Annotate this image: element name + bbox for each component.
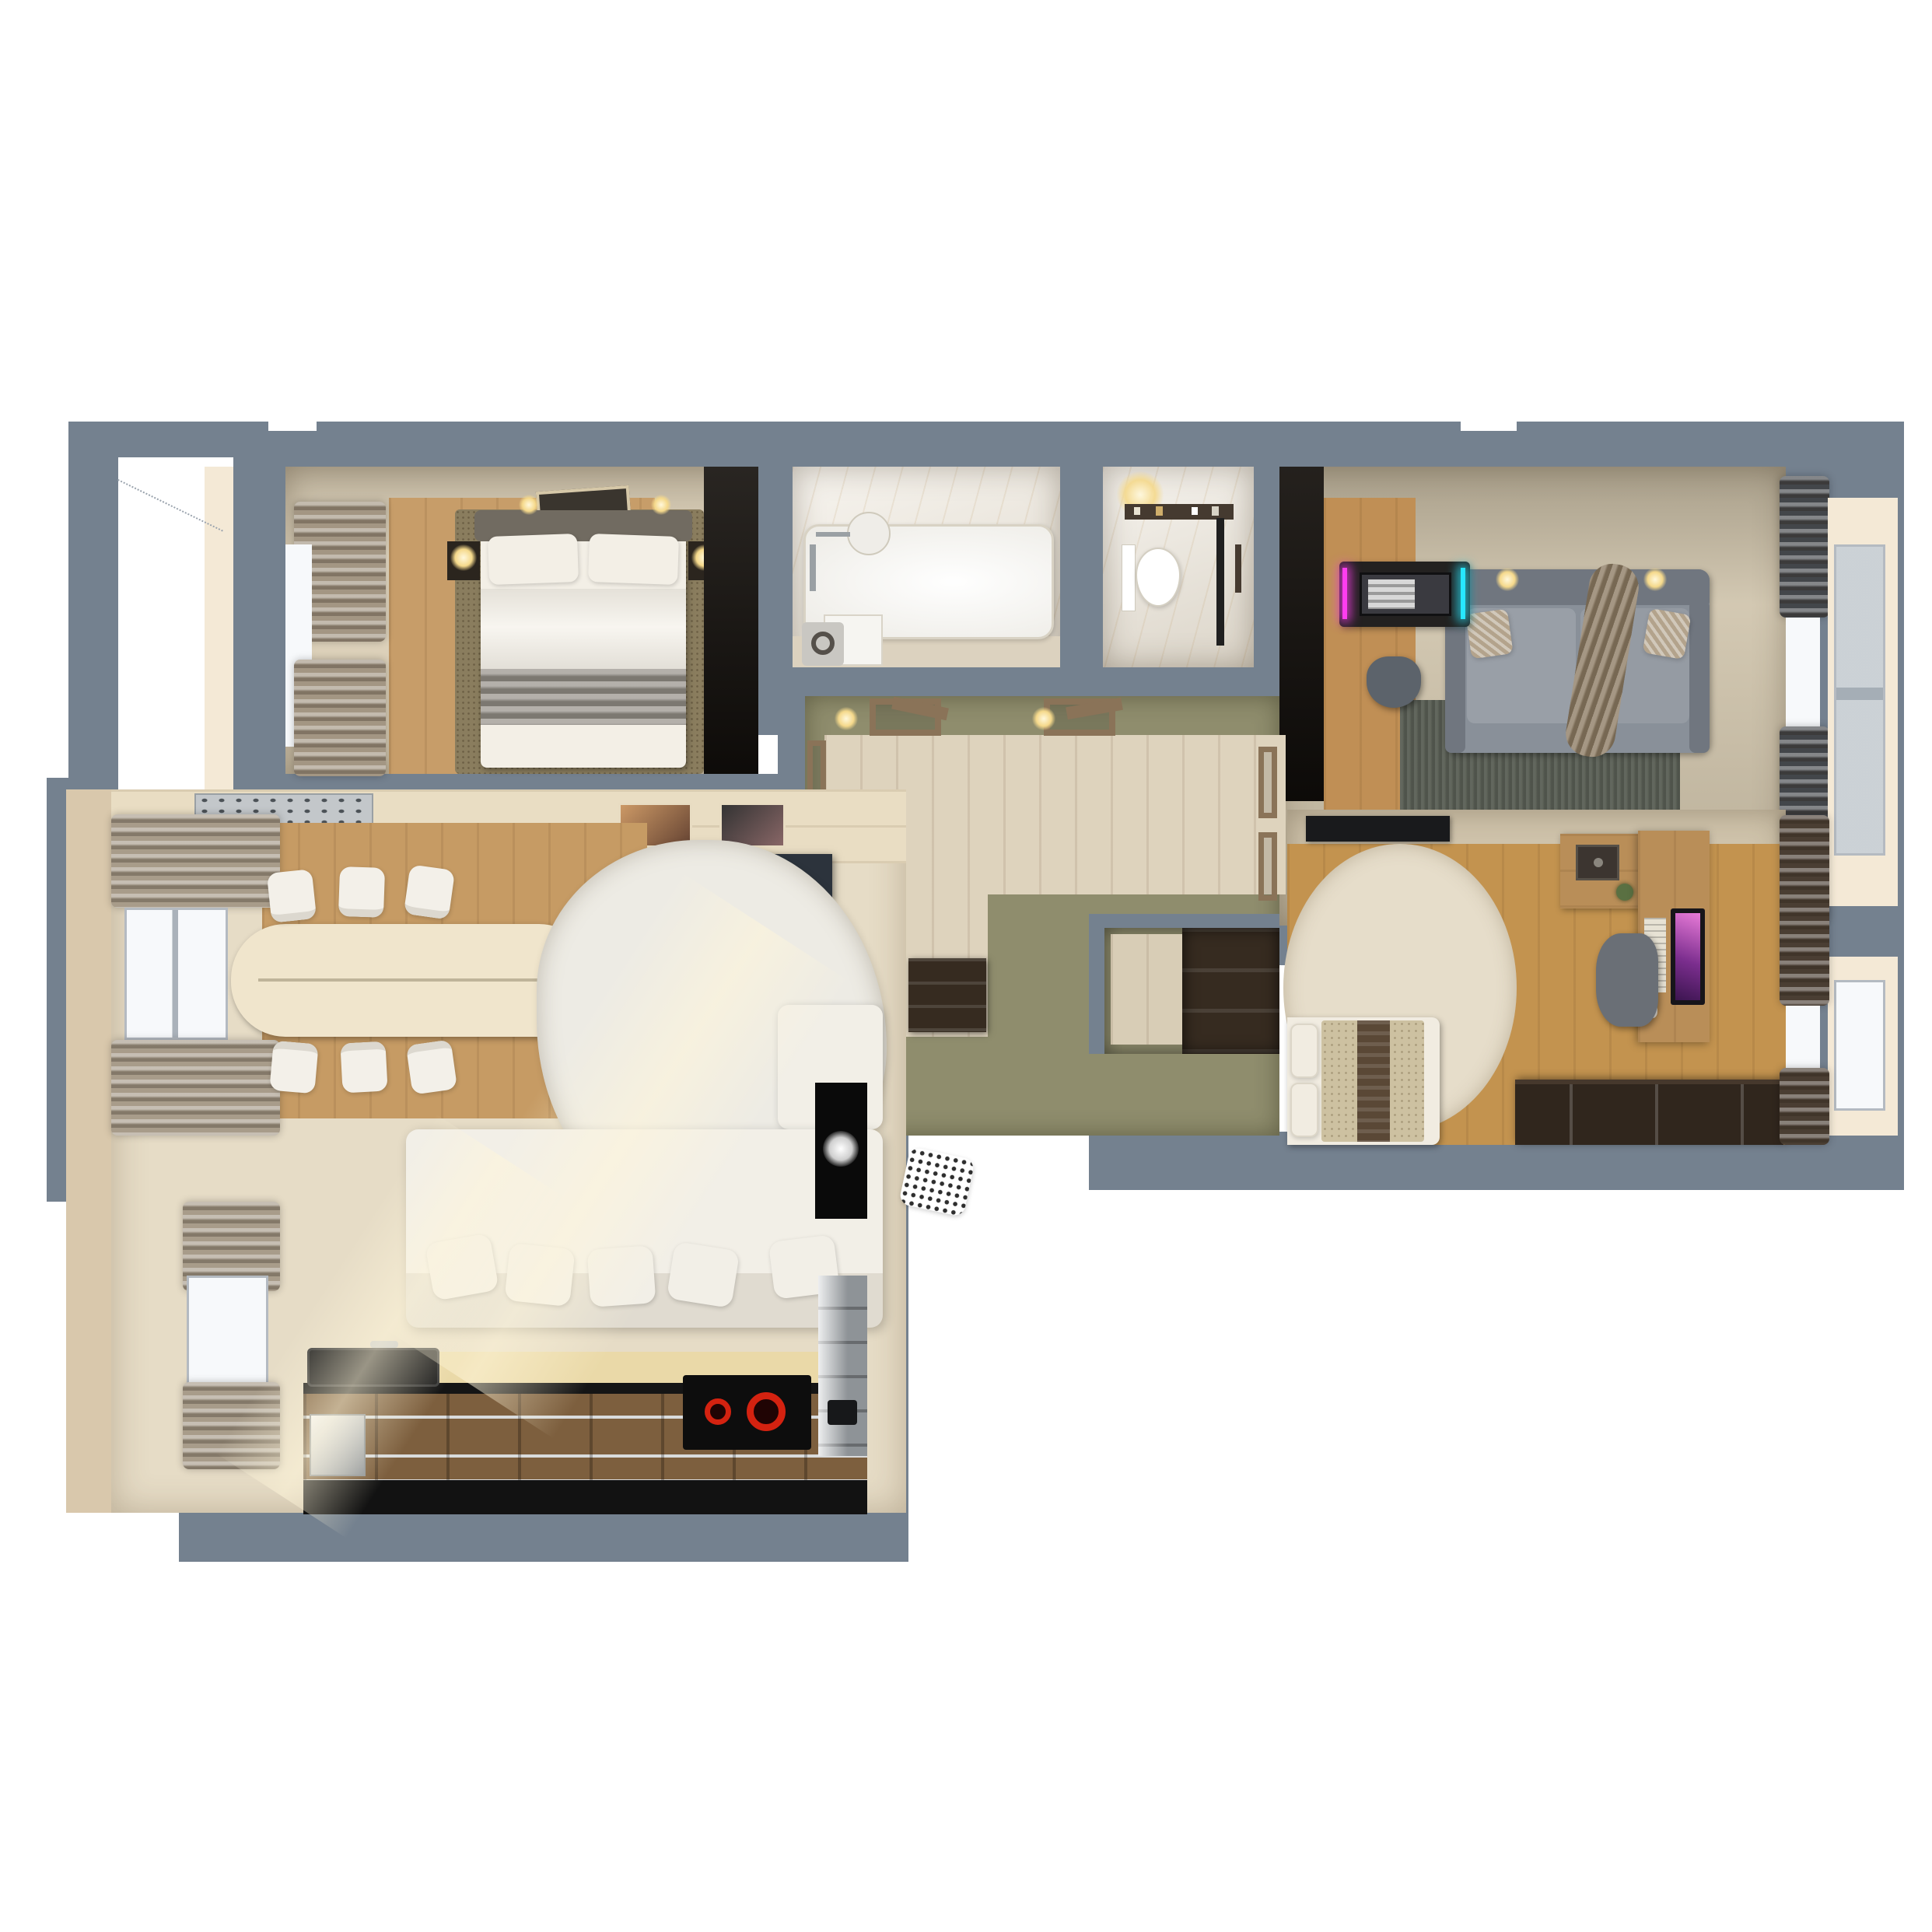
- bathroom-shower-arm: [816, 532, 850, 537]
- burner-large: [747, 1392, 786, 1431]
- sofa-lounge-arm-right: [1689, 600, 1710, 753]
- bed2-pillow-top: [1290, 1024, 1318, 1078]
- kitchen-chrome-box: [310, 1414, 366, 1476]
- toilet-tank: [1122, 544, 1136, 611]
- sofa-lounge-pillow-left: [1465, 609, 1514, 660]
- lounge-window-glow: [1786, 618, 1820, 726]
- wall-bedroom1-west: [233, 457, 285, 792]
- bedroom2-shelf: [1560, 834, 1638, 908]
- bedroom1-ceiling-light-2: [651, 495, 671, 515]
- gaming-rgb-right: [1461, 568, 1465, 619]
- hall-chest: [908, 958, 986, 1032]
- bedroom1-wardrobe: [704, 467, 758, 774]
- bed1-pillow-right: [588, 534, 679, 585]
- wc-towel-rail: [1235, 544, 1241, 593]
- kitchen-cooktop: [683, 1375, 811, 1450]
- gaming-rgb-left: [1342, 568, 1347, 619]
- bedroom2-curtain-top: [1780, 815, 1829, 1006]
- sofa-pillow-1: [425, 1233, 499, 1300]
- wc-glass-panel: [1216, 518, 1224, 646]
- balcony-upper: [118, 457, 233, 844]
- wall-notch-left: [268, 422, 317, 431]
- wall-kitchen-south: [179, 1513, 908, 1562]
- room-living-dining: [66, 789, 906, 1513]
- kitchen-plinth: [303, 1480, 867, 1514]
- wall-notch-right: [1461, 422, 1517, 431]
- bed1-pillow-left: [488, 534, 579, 585]
- bed-bedroom2: [1287, 1017, 1440, 1145]
- closet-floor: [1111, 934, 1182, 1045]
- bedroom2-monitor-screen: [1675, 913, 1700, 1000]
- dining-chair-1: [267, 869, 317, 923]
- wc-bottle-2: [1156, 506, 1163, 516]
- wall-balcony-left-column: [68, 422, 118, 844]
- bedroom2-chest: [1515, 1080, 1783, 1145]
- window-bay-bedroom2: [1828, 957, 1898, 1136]
- appliance-control: [828, 1400, 857, 1425]
- dining-chair-4: [269, 1041, 318, 1094]
- sofa-pillow-2: [504, 1243, 575, 1307]
- balcony-upper-floor: [205, 467, 233, 823]
- dining-window: [124, 908, 228, 1040]
- closet-shelving: [1182, 928, 1279, 1054]
- wall-bathroom-wc: [1060, 467, 1103, 696]
- room-wc: [1103, 467, 1254, 667]
- kitchen-faucet: [370, 1341, 398, 1348]
- lounge-ceiling-light-1: [1496, 568, 1519, 591]
- hall-ceiling-light-2: [1032, 707, 1055, 730]
- hall-doorframe-east-2: [1258, 832, 1277, 901]
- bathroom-faucet: [810, 544, 816, 591]
- wc-bottle-3: [1192, 507, 1198, 515]
- lounge-wardrobe: [1279, 467, 1324, 801]
- wc-bottle-4: [1212, 506, 1219, 516]
- room-bathroom: [793, 467, 1060, 667]
- dining-chair-5: [340, 1041, 387, 1094]
- bay1-window: [1834, 544, 1885, 856]
- wall-living-west: [47, 778, 68, 1202]
- bed1-sheet-end: [481, 725, 686, 761]
- wall-bedroom1-bathroom: [758, 467, 793, 696]
- bedroom2-window-glow: [1786, 1006, 1820, 1068]
- kitchen-steel-appliance: [818, 1276, 867, 1456]
- bedroom2-monitor: [1671, 908, 1705, 1005]
- room-bedroom1: [285, 467, 758, 774]
- wc-bottle-1: [1134, 507, 1140, 515]
- toilet-bowl: [1136, 548, 1181, 607]
- burner-small: [705, 1398, 731, 1425]
- gaming-chair: [1367, 656, 1421, 708]
- washer-door-ring: [811, 632, 835, 655]
- bedroom2-curtain-bottom: [1780, 1068, 1829, 1145]
- hall-ceiling-light-1: [835, 707, 858, 730]
- dining-curtain-top: [111, 814, 280, 908]
- washing-machine: [802, 622, 844, 666]
- window-bay-lounge: [1828, 498, 1898, 906]
- kitchen-sink: [307, 1348, 439, 1387]
- dining-table-seam: [258, 978, 569, 982]
- kitchen-window: [187, 1276, 268, 1396]
- bathroom-ceiling-fan: [847, 512, 891, 555]
- wall-closet-south: [1089, 1132, 1290, 1190]
- bedroom2-plant: [1616, 884, 1633, 901]
- bedroom1-curtain-bottom: [294, 660, 386, 776]
- bedroom2-tv: [1306, 816, 1450, 842]
- floorplan-canvas: [0, 0, 1932, 1932]
- safe-dial: [1594, 858, 1603, 867]
- bedroom1-ceiling-light-1: [519, 495, 539, 515]
- dining-chair-6: [406, 1039, 457, 1094]
- bedroom2-safe: [1576, 845, 1619, 880]
- column-light: [823, 1131, 859, 1167]
- sofa-lounge-back: [1445, 569, 1710, 605]
- lounge-ceiling-light-2: [1643, 568, 1667, 591]
- sofa-pillow-3: [587, 1245, 656, 1307]
- monitor-content: [1368, 579, 1415, 609]
- sofa-living: [406, 1129, 883, 1328]
- bed1-blanket: [481, 669, 686, 725]
- bay2-window: [1834, 980, 1885, 1111]
- living-black-column: [815, 1083, 867, 1219]
- bed2-blanket-stripe: [1357, 1020, 1390, 1142]
- bed2-pillow-bottom: [1290, 1083, 1318, 1137]
- dining-chair-3: [404, 864, 455, 919]
- sofa-lounge: [1445, 569, 1710, 753]
- wall-bedroom2-south: [1287, 1145, 1904, 1190]
- bedroom2-chair: [1596, 933, 1658, 1027]
- sofa-pillow-4: [667, 1241, 740, 1308]
- gaming-monitor-screen: [1360, 572, 1451, 616]
- room-bedroom2: [1287, 810, 1786, 1145]
- dining-curtain-bottom: [111, 1040, 280, 1136]
- bed-bedroom1: [481, 515, 686, 768]
- kitchen-curtain-bottom: [183, 1382, 280, 1469]
- sofa-lounge-pillow-right: [1642, 608, 1691, 660]
- sofa-pillow-checkered: [898, 1146, 975, 1217]
- bed1-duvet-fold: [481, 589, 686, 674]
- room-closet: [1089, 914, 1279, 1054]
- hall-doorframe-east-1: [1258, 747, 1277, 818]
- gaming-desk: [1339, 562, 1470, 627]
- bed1-lamp-left: [450, 544, 477, 571]
- dining-chair-2: [338, 866, 385, 918]
- lounge-curtain-top: [1780, 476, 1829, 618]
- wc-shelf: [1125, 504, 1234, 520]
